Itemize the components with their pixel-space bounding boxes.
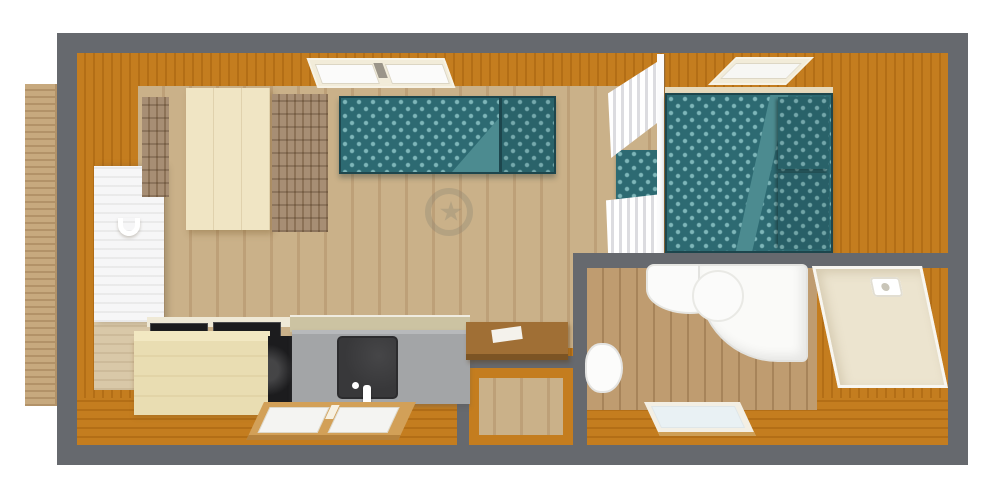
window-living: [307, 58, 456, 88]
dining-table: [186, 88, 270, 230]
closet-floor: [469, 368, 573, 445]
window-pane: [328, 407, 400, 433]
chair-right: [272, 94, 328, 232]
bed-pillow-bottom: [778, 173, 829, 249]
watermark-logo: [425, 188, 473, 236]
sink-drain-icon: [352, 382, 359, 389]
daybed-sofa: [339, 96, 556, 174]
desk: [466, 322, 568, 360]
kitchen-cabinet-top: [134, 331, 270, 341]
watermark-star-icon: [440, 201, 462, 223]
window-pane: [720, 63, 802, 79]
kitchen-cabinet: [134, 338, 270, 415]
chair-left: [142, 97, 169, 197]
desk-paper: [491, 326, 523, 343]
bed-pillow-top: [778, 97, 829, 169]
window-kitchen: [246, 402, 416, 440]
curtain-panel-bottom: [606, 194, 662, 258]
shower-nozzle-icon: [881, 283, 891, 291]
window-pane: [385, 64, 450, 84]
bathroom-wall-vertical: [573, 253, 587, 446]
door-handle-icon: [118, 218, 140, 236]
oven: [268, 336, 294, 404]
kitchen-sink: [337, 336, 398, 399]
toilet: [585, 343, 623, 393]
window-pane: [651, 406, 745, 428]
sofa-cushion: [502, 98, 554, 172]
curtain-rail: [657, 54, 664, 259]
double-bed: [665, 93, 833, 253]
floor-plan: [0, 0, 1000, 499]
shower-head-icon: [869, 277, 903, 297]
deck: [25, 84, 58, 406]
window-bathroom: [644, 402, 756, 436]
window-pane: [258, 407, 330, 433]
bathroom-sink-bowl: [692, 270, 744, 322]
window-pane: [315, 64, 380, 84]
